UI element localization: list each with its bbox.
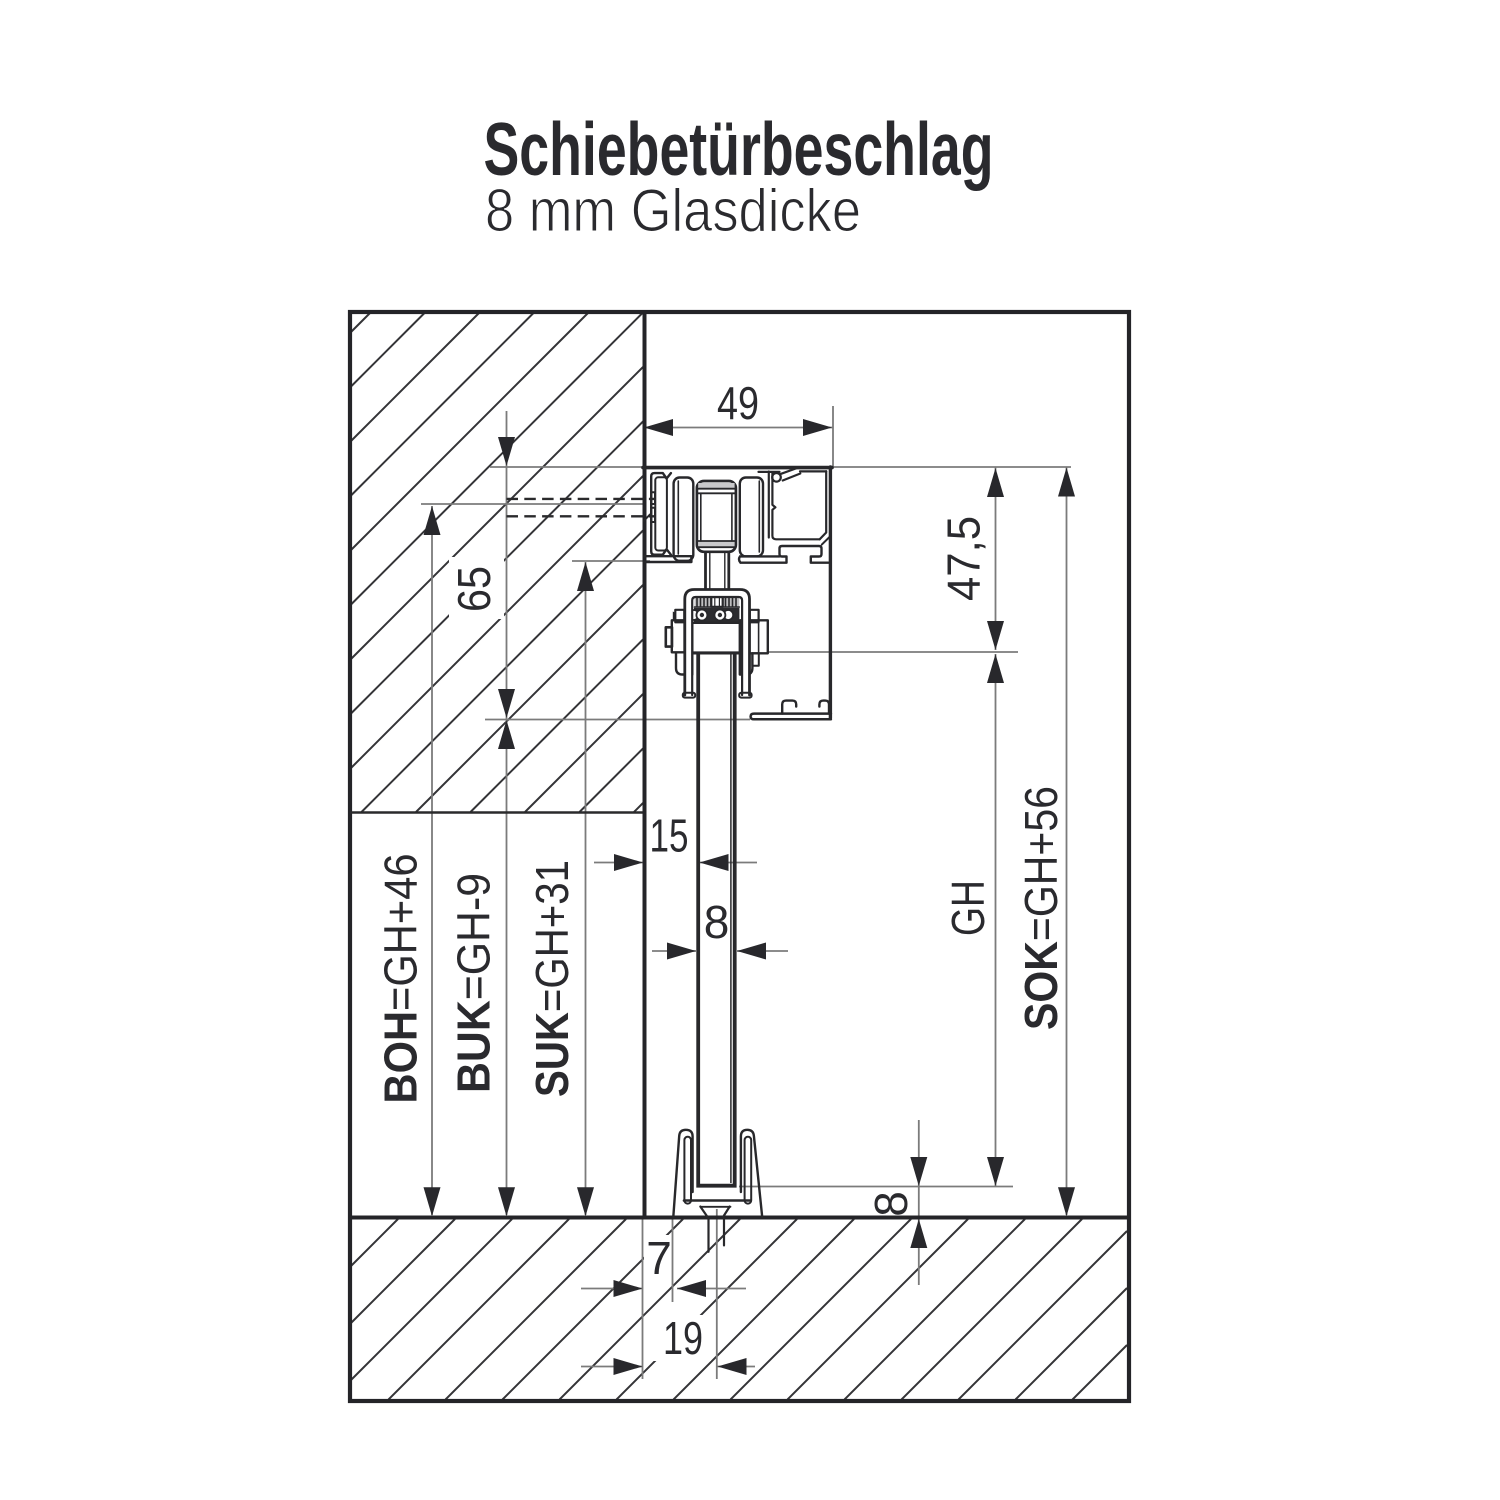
svg-text:8: 8 bbox=[704, 896, 730, 948]
svg-text:BUK=GH-9: BUK=GH-9 bbox=[448, 873, 500, 1093]
svg-text:8: 8 bbox=[865, 1191, 917, 1217]
svg-text:15: 15 bbox=[650, 810, 689, 862]
svg-text:SUK=GH+31: SUK=GH+31 bbox=[526, 860, 578, 1097]
svg-text:BOH=GH+46: BOH=GH+46 bbox=[375, 854, 427, 1104]
svg-text:GH: GH bbox=[942, 880, 994, 936]
svg-text:SOK=GH+56: SOK=GH+56 bbox=[1015, 786, 1067, 1030]
svg-text:65: 65 bbox=[448, 566, 500, 612]
svg-text:49: 49 bbox=[717, 377, 759, 429]
svg-text:47,5: 47,5 bbox=[938, 516, 990, 601]
svg-text:7: 7 bbox=[646, 1232, 672, 1284]
svg-text:19: 19 bbox=[663, 1312, 703, 1364]
svg-text:8 mm Glasdicke: 8 mm Glasdicke bbox=[485, 177, 861, 244]
